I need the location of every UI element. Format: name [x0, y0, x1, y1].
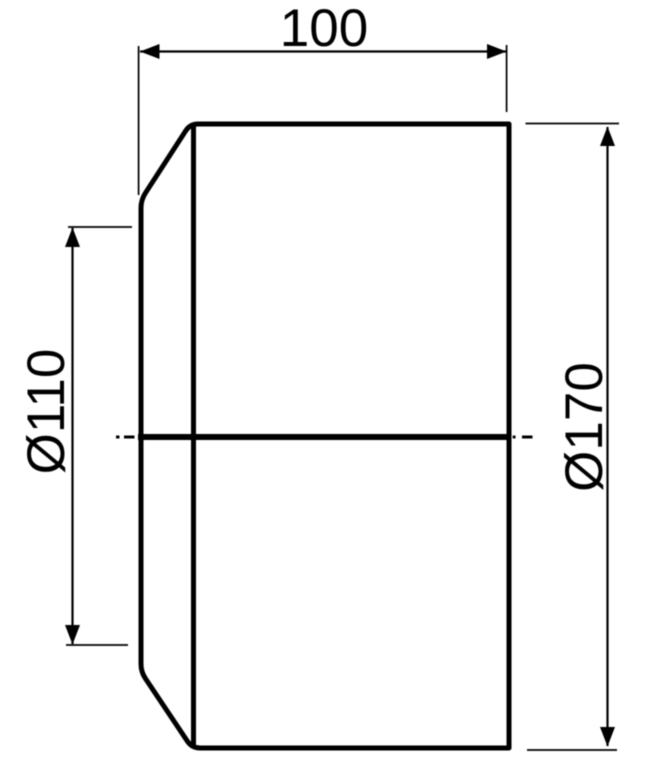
svg-text:Ø170: Ø170: [555, 362, 614, 492]
svg-text:100: 100: [280, 0, 368, 58]
svg-text:Ø110: Ø110: [17, 349, 76, 475]
